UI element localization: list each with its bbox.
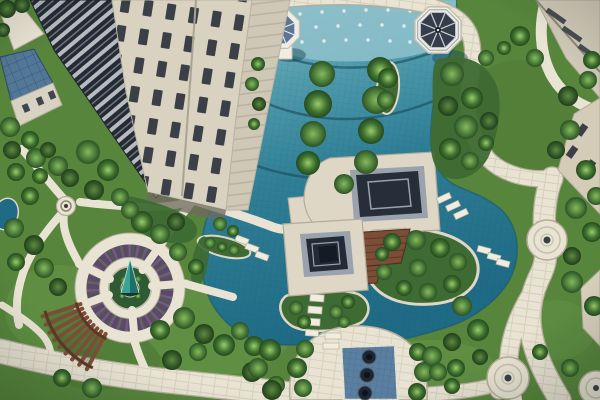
photo-vignette <box>0 0 600 400</box>
courtyard-aerial-photo: Aerial photograph of a residential compl… <box>0 0 600 400</box>
courtyard-scene: Aerial photograph of a residential compl… <box>0 0 600 400</box>
